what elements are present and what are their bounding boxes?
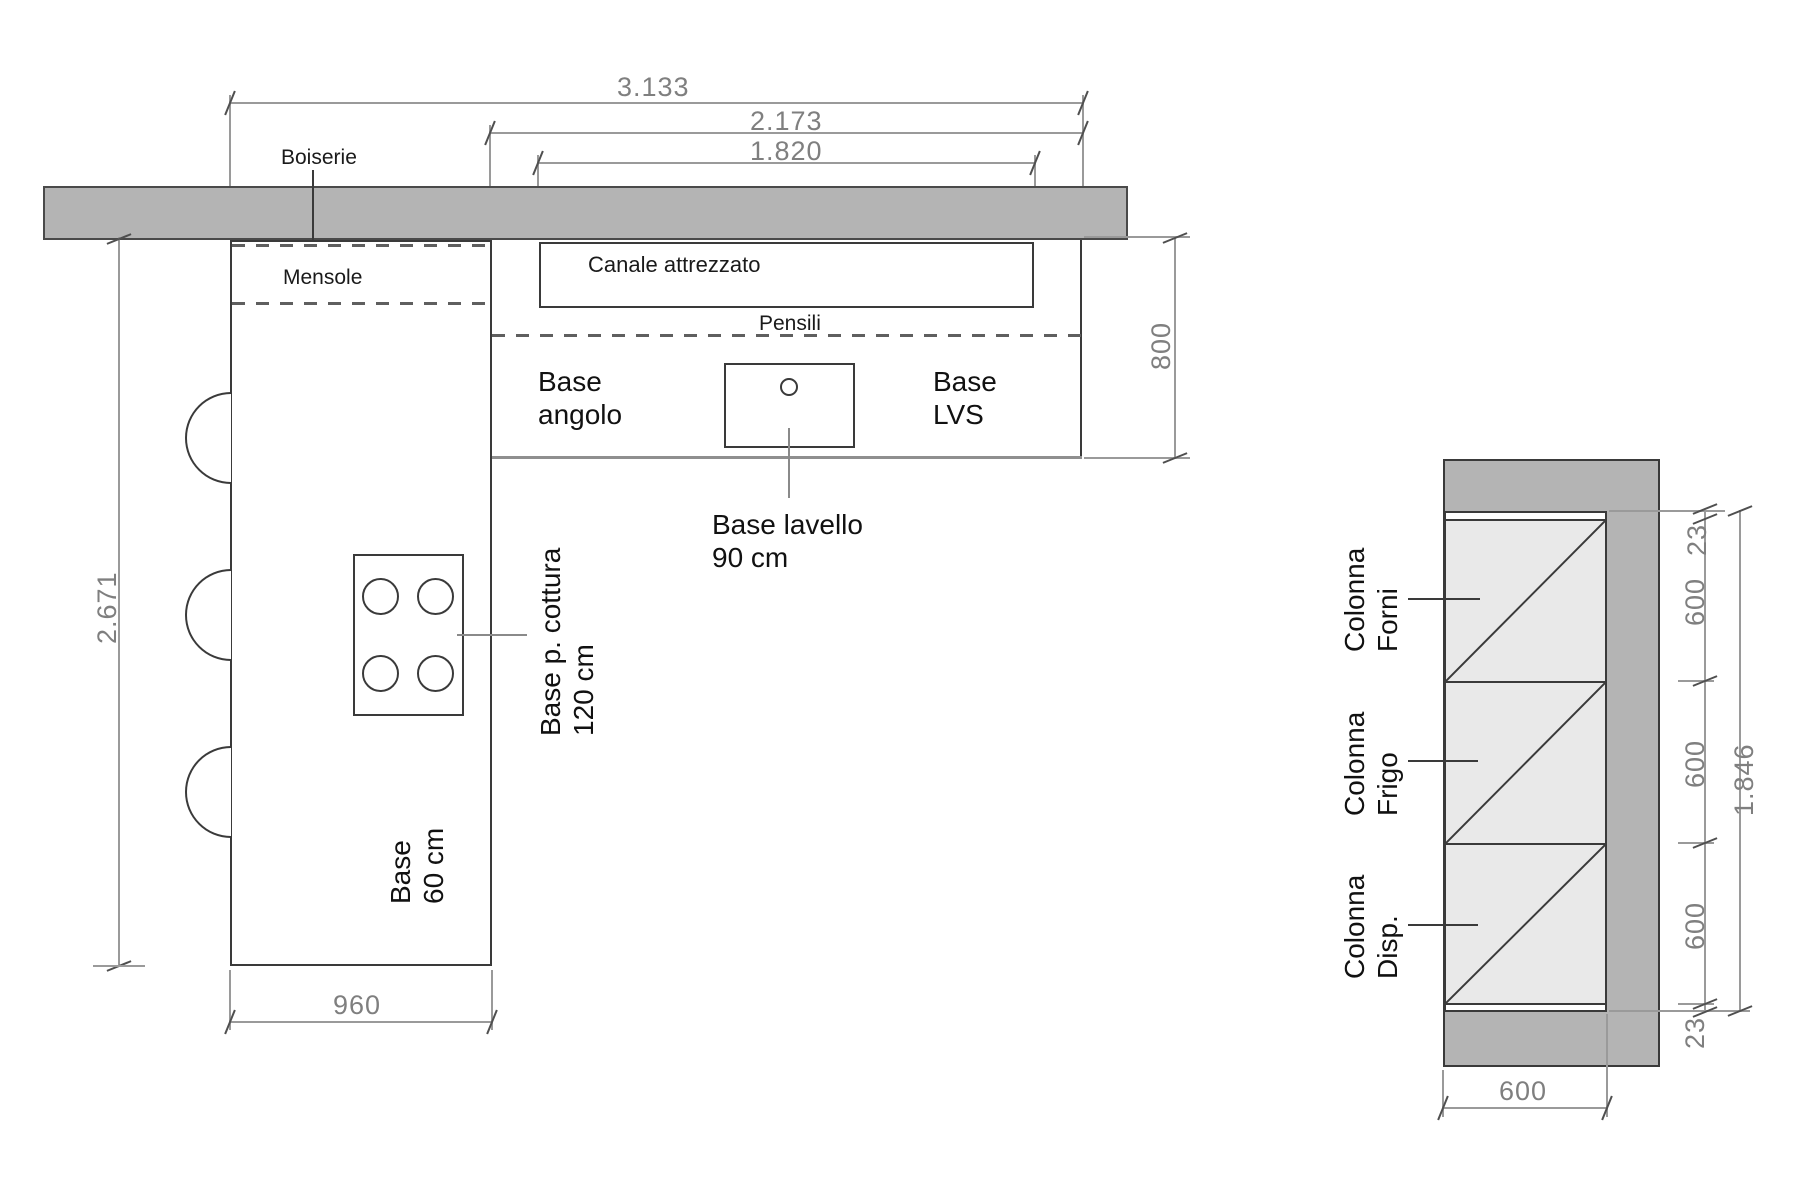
pantry-column-label: Colonna Disp.: [1338, 875, 1404, 979]
fridge-column-label-line2: Frigo: [1371, 712, 1404, 816]
wall-band: [43, 186, 1128, 240]
upper-cabinets-label: Pensili: [759, 312, 821, 336]
faucet-icon: [780, 378, 798, 396]
extension-line: [229, 95, 231, 186]
oven-column-label-line2: Forni: [1371, 548, 1404, 652]
burner-icon: [362, 578, 399, 615]
stool-1: [185, 392, 231, 484]
extension-line: [1609, 510, 1725, 512]
island-base-label: Base 60 cm: [384, 828, 450, 904]
shelves-dashed-line-top: [232, 244, 490, 247]
burner-icon: [362, 655, 399, 692]
lvs-unit-label-line1: Base: [933, 365, 997, 398]
corner-unit-label: Base angolo: [538, 365, 622, 431]
stool-2: [185, 569, 231, 661]
dim-island-length: 2.671: [92, 571, 123, 644]
sink-unit-label-line2: 90 cm: [712, 541, 863, 574]
dim-top-panel: 23: [1682, 524, 1713, 556]
sink-unit-label-line1: Base lavello: [712, 508, 863, 541]
oven-column-label: Colonna Forni: [1338, 548, 1404, 652]
shelves-dashed-line-bottom: [232, 302, 490, 305]
dim-line-column-width: [1443, 1107, 1607, 1109]
pantry-column-label-line1: Colonna: [1338, 875, 1371, 979]
dim-total-height: 1.846: [1729, 743, 1760, 816]
dim-channel-width: 1.820: [750, 136, 823, 167]
sink-leader-line: [788, 428, 790, 498]
dim-line-island-width: [230, 1021, 492, 1023]
cooktop-label: Base p. cottura 120 cm: [534, 548, 600, 736]
fridge-column-label-line1: Colonna: [1338, 712, 1371, 816]
lvs-unit-label-line2: LVS: [933, 398, 997, 431]
pantry-column-label-line2: Disp.: [1371, 875, 1404, 979]
boiserie-label: Boiserie: [281, 146, 357, 170]
dim-fridge: 600: [1680, 740, 1711, 788]
stool-3: [185, 746, 231, 838]
oven-column-label-line1: Colonna: [1338, 548, 1371, 652]
extension-line: [93, 965, 145, 967]
fridge-column-cell: [1446, 681, 1605, 843]
diagonal-icon: [1446, 521, 1605, 681]
dim-total-width: 3.133: [617, 72, 690, 103]
burner-icon: [417, 655, 454, 692]
oven-column-cell: [1446, 519, 1605, 681]
diagonal-icon: [1446, 683, 1605, 843]
dim-column-width: 600: [1499, 1076, 1547, 1107]
cooktop-outline: [353, 554, 464, 716]
pantry-column-leader-line: [1408, 924, 1478, 926]
equipped-channel-label: Canale attrezzato: [588, 252, 760, 278]
island-base-label-line2: 60 cm: [417, 828, 450, 904]
fridge-column-leader-line: [1408, 760, 1478, 762]
dim-counter-width: 2.173: [750, 106, 823, 137]
cooktop-label-line1: Base p. cottura: [534, 548, 567, 736]
oven-column-leader-line: [1408, 598, 1480, 600]
dim-island-width: 960: [333, 990, 381, 1021]
kitchen-plan-drawing: 3.133 2.173 1.820 Boiserie Mensole Base …: [0, 0, 1800, 1200]
dim-oven: 600: [1680, 578, 1711, 626]
cooktop-leader-line: [457, 634, 527, 636]
counter-right-edge: [1080, 240, 1082, 458]
dim-counter-depth: 800: [1146, 322, 1177, 370]
boiserie-leader-line: [312, 170, 314, 240]
fridge-column-label: Colonna Frigo: [1338, 712, 1404, 816]
extension-line: [1082, 95, 1084, 186]
dim-bottom-panel: 23: [1680, 1017, 1711, 1049]
sink-unit-label: Base lavello 90 cm: [712, 508, 863, 574]
extension-line: [1609, 1010, 1750, 1012]
cooktop-label-line2: 120 cm: [567, 548, 600, 736]
corner-unit-label-line2: angolo: [538, 398, 622, 431]
burner-icon: [417, 578, 454, 615]
corner-unit-label-line1: Base: [538, 365, 622, 398]
counter-front-edge: [492, 456, 1082, 459]
lvs-unit-label: Base LVS: [933, 365, 997, 431]
island-base-label-line1: Base: [384, 828, 417, 904]
dim-pantry: 600: [1680, 902, 1711, 950]
shelves-label: Mensole: [283, 266, 362, 290]
